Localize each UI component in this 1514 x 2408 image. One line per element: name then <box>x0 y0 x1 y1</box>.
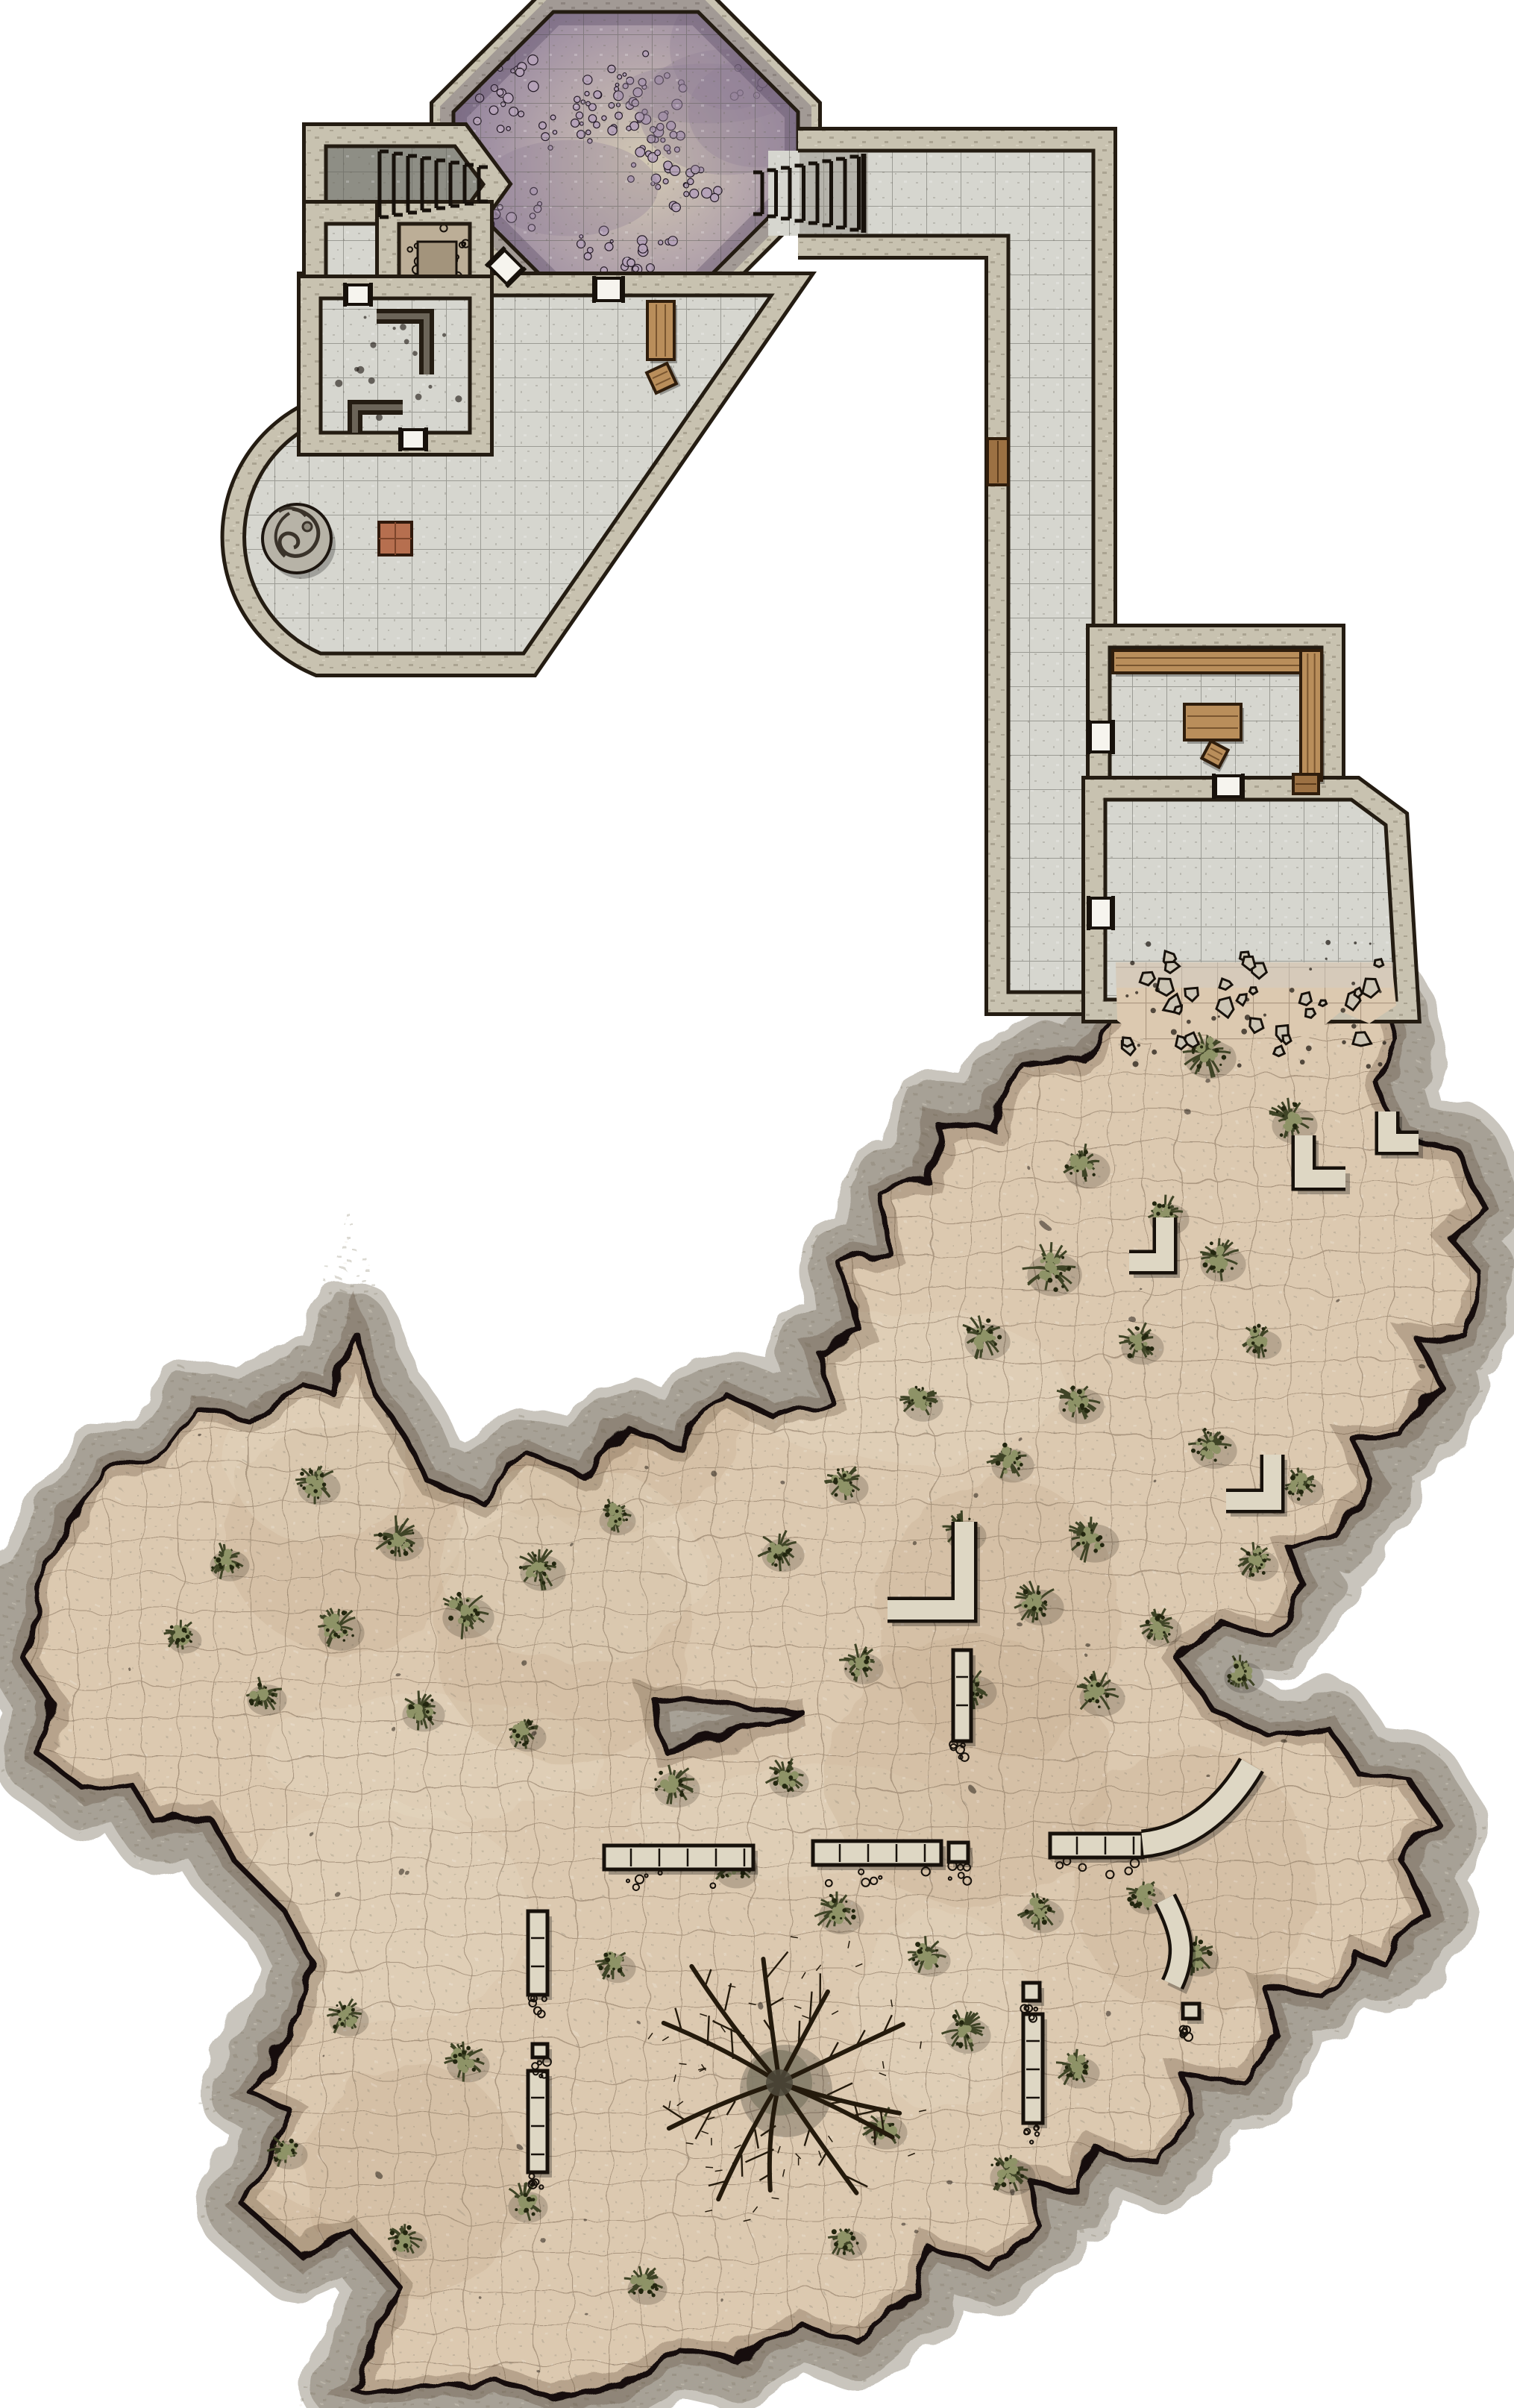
grass-speck <box>1038 1607 1043 1611</box>
grass-speck <box>1197 1064 1202 1068</box>
grass-clump <box>518 2196 526 2204</box>
grass-speck <box>280 2143 283 2147</box>
grass-speck <box>186 1634 190 1639</box>
grass-speck <box>338 2018 341 2021</box>
grass-speck <box>835 1493 838 1497</box>
grass-speck <box>922 1387 924 1389</box>
grass-speck <box>871 2136 873 2139</box>
grass-speck <box>459 1601 462 1603</box>
grass-speck <box>1158 1203 1162 1208</box>
grass-clump <box>923 1954 931 1962</box>
grass-speck <box>289 2139 294 2143</box>
grass-speck <box>1168 1206 1170 1208</box>
grass-speck <box>609 1952 611 1954</box>
table-top <box>1184 704 1241 740</box>
rubble-stone <box>1299 992 1311 1005</box>
grass-clump <box>394 1534 400 1540</box>
grass-speck <box>936 1965 939 1968</box>
grass-speck <box>274 1689 277 1692</box>
grass-speck <box>1253 1326 1257 1329</box>
grass-speck <box>1203 1262 1208 1267</box>
grass-speck <box>274 2158 278 2163</box>
grass-speck <box>633 2292 636 2295</box>
grass-clump <box>961 2025 968 2033</box>
grass-speck <box>1290 1476 1295 1481</box>
grass-speck <box>920 1947 923 1949</box>
grass-clump <box>415 1705 423 1713</box>
grass-speck <box>1090 1529 1093 1531</box>
grass-speck <box>767 1547 771 1551</box>
debris-dot <box>527 1666 533 1672</box>
grass-speck <box>342 1611 347 1616</box>
debris-dot <box>1043 1223 1049 1229</box>
grass-speck <box>1017 1467 1020 1470</box>
grass-speck <box>409 1707 411 1709</box>
grass-speck <box>403 2243 409 2248</box>
grass-speck <box>182 1628 187 1633</box>
grass-speck <box>1075 2078 1078 2081</box>
debris-dot <box>403 1873 409 1880</box>
grass-speck <box>774 1770 779 1775</box>
rubble-stone <box>1174 1006 1181 1014</box>
grass-speck <box>1192 1047 1196 1051</box>
rubble-dot <box>1151 1008 1156 1013</box>
rubble-stone <box>1283 1035 1291 1044</box>
grass-speck <box>968 1518 970 1520</box>
chamber-rubble-dot <box>442 333 446 337</box>
grass-clump <box>280 2148 286 2153</box>
grass-speck <box>844 1668 846 1670</box>
grass-clump <box>260 1690 266 1697</box>
grass-clump <box>611 1956 615 1960</box>
grass-speck <box>598 1966 603 1970</box>
grass-speck <box>1002 1443 1008 1448</box>
grass-speck <box>1292 1493 1295 1496</box>
grass-clump <box>1142 1888 1149 1896</box>
grass-speck <box>1095 1699 1099 1704</box>
grass-speck <box>908 1402 911 1405</box>
grass-speck <box>342 2006 345 2010</box>
chamber-rubble-dot <box>368 377 375 384</box>
grass-speck <box>322 1482 326 1486</box>
grass-speck <box>1002 2182 1007 2187</box>
chamber-rubble-dot <box>400 324 406 330</box>
grass-speck <box>1220 1269 1224 1273</box>
rubble-dot <box>1354 941 1357 944</box>
grass-speck <box>317 1496 320 1499</box>
grass-speck <box>1148 1891 1152 1895</box>
grass-speck <box>614 1520 617 1523</box>
grass-speck <box>1043 1257 1046 1259</box>
grass-speck <box>1199 1940 1203 1944</box>
grass-speck <box>1282 1114 1284 1117</box>
debris-dot <box>950 2183 955 2188</box>
grass-speck <box>891 2123 894 2126</box>
debris-dot <box>1084 1641 1088 1646</box>
rubble-dot <box>1325 958 1328 960</box>
grass-speck <box>843 1473 846 1477</box>
tree-twig <box>799 2021 800 2046</box>
debris-dot <box>541 1194 547 1199</box>
grass-speck <box>976 1330 979 1332</box>
grass-speck <box>1210 1250 1215 1254</box>
chamber-rubble-dot <box>370 342 376 348</box>
grass-speck <box>832 1916 835 1919</box>
debris-dot <box>712 1472 718 1478</box>
grass-speck <box>923 1396 926 1399</box>
grass-speck <box>952 2014 957 2019</box>
grass-speck <box>997 1335 1002 1339</box>
door-slab <box>1090 898 1111 928</box>
grass-speck <box>1219 1064 1222 1066</box>
stone-door <box>1087 896 1115 930</box>
grass-speck <box>1313 1484 1316 1487</box>
rubble-dot <box>1351 982 1355 985</box>
grass-speck <box>1127 1897 1132 1902</box>
grass-speck <box>1246 1551 1251 1555</box>
debris-dot <box>969 1488 974 1493</box>
rubble-dot <box>1219 986 1222 989</box>
chamber-rubble-dot <box>404 339 409 345</box>
rubble-dot <box>1146 941 1151 947</box>
grass-speck <box>1024 1604 1028 1608</box>
grass-speck <box>789 1787 793 1791</box>
grass-clump <box>997 2170 1005 2178</box>
grass-speck <box>1061 1256 1064 1259</box>
door-slab <box>347 285 369 304</box>
tree-trunk-top <box>766 2069 793 2096</box>
grass-clump <box>1035 1909 1040 1914</box>
grass-speck <box>832 2229 837 2234</box>
grass-clump <box>1213 1446 1221 1454</box>
debris-dot <box>464 1325 467 1328</box>
grass-clump <box>1283 1124 1288 1129</box>
grass-speck <box>1234 1664 1239 1669</box>
grass-speck <box>1087 1409 1090 1412</box>
debris-dot <box>1184 1109 1190 1114</box>
grass-speck <box>774 1564 778 1567</box>
grass-clump <box>838 2236 843 2242</box>
grass-clump <box>521 1729 527 1736</box>
grass-speck <box>618 1968 623 1973</box>
grass-speck <box>1146 1620 1150 1624</box>
door-slab <box>402 430 424 449</box>
grass-clump <box>1255 1555 1260 1561</box>
grass-clump <box>779 1771 787 1778</box>
grass-speck <box>292 2151 295 2154</box>
rubble-dot <box>1309 968 1312 971</box>
grass-speck <box>911 1408 914 1411</box>
rubble-stone <box>1122 1038 1133 1047</box>
grass-speck <box>1281 1106 1287 1111</box>
grass-speck <box>271 1699 274 1703</box>
grass-speck <box>1196 1451 1200 1455</box>
grass-speck <box>788 1761 791 1764</box>
grass-speck <box>524 1740 528 1744</box>
grass-speck <box>1083 2064 1088 2069</box>
door-slab <box>596 278 621 301</box>
grass-clump <box>449 1599 458 1608</box>
rubble-slab <box>418 242 456 278</box>
grass-speck <box>236 1563 240 1567</box>
debris-dot <box>656 1097 662 1103</box>
grass-speck <box>1241 1676 1246 1681</box>
grass-clump <box>1073 1166 1080 1173</box>
grass-speck <box>532 2198 535 2201</box>
grass-speck <box>1067 1267 1071 1271</box>
grass-clump <box>249 1691 257 1699</box>
grass-speck <box>678 1779 682 1784</box>
grass-speck <box>1262 1327 1265 1330</box>
grass-speck <box>785 1549 790 1554</box>
grass-speck <box>618 1517 622 1521</box>
debris-dot <box>113 1997 117 2001</box>
grass-speck <box>265 1687 267 1689</box>
grass-speck <box>606 1975 610 1978</box>
grass-speck <box>1076 1170 1079 1173</box>
grass-speck <box>990 2163 993 2166</box>
grass-clump <box>1002 1446 1011 1455</box>
grass-clump <box>324 1631 330 1637</box>
grass-speck <box>1248 1567 1251 1570</box>
grass-speck <box>1081 1406 1084 1410</box>
debris-dot <box>101 1047 104 1050</box>
grass-speck <box>1214 1048 1219 1053</box>
rubble-dot <box>1187 1020 1191 1024</box>
grass-speck <box>981 1326 984 1329</box>
grass-speck <box>1131 1894 1136 1899</box>
debris-dot <box>1452 1647 1455 1650</box>
debris-dot <box>568 1541 573 1546</box>
ruin-stone <box>1023 1983 1040 2001</box>
rubble-dot <box>1152 1050 1157 1055</box>
grass-speck <box>782 1552 787 1557</box>
grass-speck <box>1244 1669 1247 1672</box>
grass-speck <box>654 1778 657 1781</box>
door-slab <box>1216 776 1241 797</box>
grass-speck <box>929 1402 932 1405</box>
grass-speck <box>1067 2073 1070 2077</box>
grass-speck <box>351 2008 355 2012</box>
grass-speck <box>1043 1600 1047 1604</box>
grass-speck <box>1219 1435 1225 1440</box>
grass-clump <box>976 1335 984 1343</box>
grass-clump <box>1070 1160 1077 1167</box>
grass-speck <box>249 1699 254 1703</box>
grass-clump <box>844 1489 851 1496</box>
grass-speck <box>326 1628 330 1632</box>
rubble-stone <box>1319 1000 1327 1006</box>
grass-speck <box>1088 1699 1092 1702</box>
shelf <box>1113 650 1307 677</box>
rubble-dot <box>1133 1061 1139 1067</box>
grass-speck <box>524 2193 527 2197</box>
grass-speck <box>840 1917 842 1919</box>
grass-clump <box>226 1568 230 1573</box>
grass-speck <box>515 1734 520 1738</box>
grass-speck <box>975 1682 979 1687</box>
rubble-dot <box>1130 961 1134 965</box>
grass-clump <box>630 2277 637 2284</box>
debris-dot <box>1205 1079 1210 1083</box>
debris-dot <box>327 2059 329 2061</box>
debris-dot <box>127 2132 131 2136</box>
grass-clump <box>1251 1567 1257 1573</box>
grass-speck <box>604 1505 608 1508</box>
debris-dot <box>1369 2203 1371 2205</box>
rubble-dot <box>1382 1041 1386 1044</box>
grass-clump <box>224 1555 230 1560</box>
grass-speck <box>541 1581 545 1584</box>
grass-speck <box>1037 1590 1041 1595</box>
door-slab <box>1090 722 1111 752</box>
statue-head <box>303 522 312 531</box>
grass-speck <box>1079 1154 1081 1156</box>
rubble-dot <box>1237 1063 1242 1067</box>
grass-speck <box>1069 1172 1072 1175</box>
table <box>647 301 677 363</box>
stone-door <box>1212 774 1245 799</box>
grass-speck <box>1276 1111 1279 1114</box>
grass-speck <box>390 2230 395 2235</box>
chamber-rubble-dot <box>356 366 364 374</box>
grass-speck <box>1231 1267 1234 1270</box>
debris-dot <box>1207 1775 1210 1778</box>
debris-dot <box>1020 1440 1025 1444</box>
grass-clump <box>465 2055 469 2060</box>
grass-clump <box>407 1711 415 1718</box>
grass-speck <box>1084 1177 1087 1180</box>
grass-clump <box>908 1388 918 1397</box>
grass-speck <box>1081 1532 1085 1537</box>
grass-clump <box>776 1548 780 1552</box>
grass-speck <box>1009 2182 1011 2184</box>
grass-speck <box>302 1487 306 1490</box>
grass-speck <box>403 1551 409 1556</box>
grass-speck <box>1192 1051 1195 1054</box>
grass-speck <box>378 1532 383 1537</box>
grass-clump <box>968 2038 973 2042</box>
grass-speck <box>864 1651 867 1654</box>
grass-clump <box>1307 1480 1311 1484</box>
debris-dot <box>535 2368 538 2371</box>
cavern-layer <box>28 961 1484 2398</box>
grass-clump <box>333 1624 341 1631</box>
grass-speck <box>917 1388 920 1391</box>
grass-speck <box>1020 1463 1023 1467</box>
grass-clump <box>1053 1257 1061 1264</box>
debris-dot <box>759 2004 765 2010</box>
chamber-rubble-dot <box>364 316 367 319</box>
grass-speck <box>410 1544 413 1547</box>
grass-speck <box>456 1592 461 1596</box>
debris-dot <box>84 1109 87 1112</box>
debris-dot <box>987 2333 990 2336</box>
grass-speck <box>406 2225 411 2230</box>
grass-speck <box>1213 1458 1216 1461</box>
grass-speck <box>219 1565 223 1569</box>
ruined-wall <box>1023 2014 1047 2144</box>
debris-dot <box>788 1227 794 1233</box>
grass-speck <box>1128 1353 1133 1358</box>
stone-door <box>592 276 625 303</box>
rubble-stone <box>1375 959 1383 968</box>
grass-clump <box>1067 2054 1075 2063</box>
rubble-stone <box>1274 1046 1285 1056</box>
grass-clump <box>460 1609 468 1617</box>
grass-speck <box>448 1616 453 1621</box>
grass-speck <box>1017 2172 1020 2175</box>
grass-speck <box>524 2208 529 2213</box>
grass-speck <box>1252 1349 1257 1353</box>
grass-speck <box>1031 1606 1037 1611</box>
debris-dot <box>376 2172 382 2178</box>
debris-dot <box>1016 1620 1021 1625</box>
debris-dot <box>641 1462 644 1466</box>
grass-speck <box>844 2229 848 2233</box>
grass-speck <box>519 1741 521 1743</box>
ruin-stone <box>953 1650 971 1741</box>
stone-door <box>398 427 428 451</box>
debris-dot <box>332 1889 338 1895</box>
grass-clump <box>404 1542 410 1548</box>
grass-speck <box>1084 1150 1088 1155</box>
grass-speck <box>216 1558 221 1563</box>
grass-speck <box>1251 1341 1255 1345</box>
grass-clump <box>1004 1459 1008 1464</box>
grass-speck <box>834 2242 838 2246</box>
grass-speck <box>337 2010 341 2013</box>
grass-clump <box>1049 1263 1055 1268</box>
grass-speck <box>1092 1173 1095 1176</box>
grass-speck <box>1042 1613 1046 1617</box>
grass-speck <box>1207 1951 1213 1956</box>
grass-speck <box>837 1468 840 1471</box>
grass-clump <box>351 2016 357 2023</box>
grass-speck <box>300 1484 303 1487</box>
grass-speck <box>343 1639 346 1642</box>
grass-speck <box>512 1729 517 1734</box>
grass-speck <box>625 1518 628 1521</box>
grass-speck <box>412 1532 414 1534</box>
chamber-rubble-dot <box>415 394 422 401</box>
rubble-dot <box>1218 1015 1220 1018</box>
grass-clump <box>1080 1156 1088 1164</box>
grass-speck <box>453 2054 457 2058</box>
grass-speck <box>473 1608 477 1613</box>
grass-speck <box>462 2050 466 2054</box>
grass-speck <box>958 2042 964 2047</box>
grass-speck <box>996 2162 1000 2166</box>
debris-dot <box>315 1837 319 1842</box>
grass-speck <box>1210 1241 1213 1245</box>
grass-speck <box>605 1957 608 1960</box>
grass-speck <box>1130 1901 1134 1906</box>
chamber-rubble-dot <box>455 395 462 402</box>
rubble-dot <box>1125 994 1128 997</box>
grass-speck <box>395 2239 400 2245</box>
rubble-dot <box>1137 1044 1140 1047</box>
grass-clump <box>534 1562 539 1567</box>
grass-clump <box>1132 1335 1140 1343</box>
rubble-dot <box>1153 983 1158 988</box>
grass-clump <box>174 1625 180 1631</box>
grass-clump <box>789 1781 796 1787</box>
grass-speck <box>852 1909 855 1913</box>
grass-speck <box>1059 1272 1062 1275</box>
grass-speck <box>843 2245 848 2251</box>
debris-dot <box>782 1482 786 1486</box>
